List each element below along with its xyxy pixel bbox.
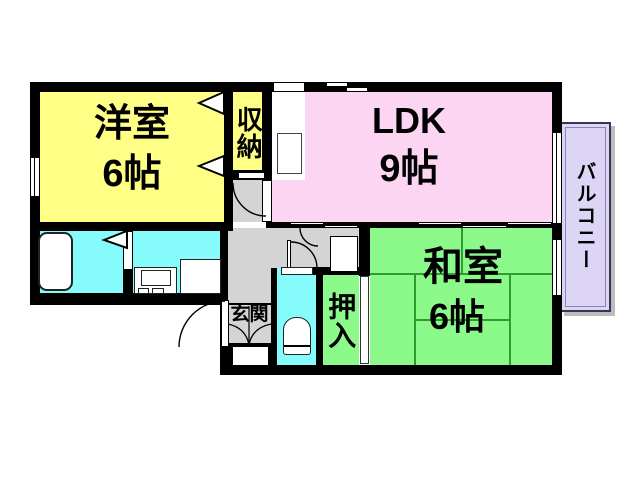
wall-porch-left <box>222 343 233 375</box>
window-ldk-top-pane <box>326 82 348 87</box>
room-size-ldk: 9帖 <box>266 148 552 192</box>
window-japanese-balcony-line <box>556 240 557 295</box>
washing-machine-drum <box>141 270 171 286</box>
window-ldk-balcony-line <box>556 133 557 223</box>
bath-door-opening <box>123 231 133 270</box>
wall-bath-bottom <box>30 293 228 305</box>
floor-plan: 洋室 6帖 収納 LDK 9帖 和室 6帖 押入 玄関 バルコニー <box>0 0 640 480</box>
room-size-japanese: 6帖 <box>366 296 548 338</box>
sliding-door-ldk-japanese <box>507 222 552 225</box>
window-western-left <box>31 158 39 196</box>
window-western-left-line <box>34 158 35 196</box>
entrance-step-line <box>225 343 277 347</box>
entrance-porch <box>233 348 268 365</box>
room-size-western: 6帖 <box>40 152 224 198</box>
room-label-entrance: 玄関 <box>226 304 273 326</box>
room-label-japanese: 和室 <box>372 243 554 291</box>
sliding-door-ldk-hall <box>290 222 324 225</box>
wall-western-bottom <box>30 222 233 231</box>
vanity-sink <box>180 259 221 294</box>
door-leaf-hall-upper <box>238 172 265 179</box>
door-arc-entrance <box>179 301 225 347</box>
window-kitchen-top <box>274 83 304 91</box>
wall-bath-divider-lower <box>123 270 133 293</box>
toilet-shelf <box>281 267 313 275</box>
toilet-bowl-line <box>284 345 310 347</box>
sliding-door-ldk-japanese <box>418 222 462 225</box>
window-ldk-top-pane <box>346 87 368 92</box>
room-label-western: 洋室 <box>40 102 224 148</box>
room-label-balcony: バルコニー <box>560 138 607 294</box>
door-leaf-japanese <box>330 236 358 272</box>
washing-machine-foot <box>152 288 164 294</box>
room-label-closet: 押入 <box>322 280 359 362</box>
toilet-bowl <box>283 317 311 355</box>
sliding-door-ldk-japanese <box>462 225 507 228</box>
wall-porch-right <box>268 343 277 375</box>
sliding-door-ldk-hall <box>324 225 358 228</box>
washing-machine-foot <box>138 288 149 294</box>
room-label-ldk: LDK <box>266 100 552 142</box>
bathtub <box>38 232 73 291</box>
door-leaf-toilet <box>287 240 291 268</box>
wall-western-right <box>224 92 233 231</box>
room-label-storage: 収納 <box>233 95 262 171</box>
